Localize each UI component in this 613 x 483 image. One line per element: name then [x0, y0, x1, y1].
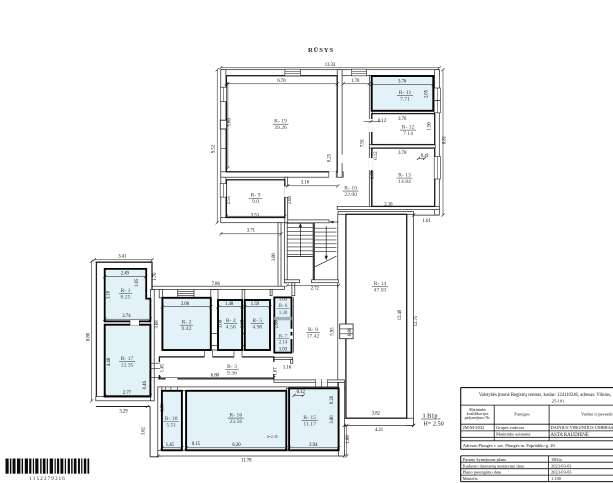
- svg-text:R- 3: R- 3: [227, 364, 237, 370]
- svg-text:R- 1: R- 1: [121, 288, 131, 294]
- svg-text:9.0: 9.0: [252, 199, 259, 205]
- svg-text:3.08: 3.08: [241, 319, 246, 328]
- svg-text:2.69: 2.69: [288, 196, 293, 205]
- svg-text:14.84: 14.84: [398, 179, 411, 185]
- svg-text:2.14: 2.14: [279, 340, 288, 345]
- svg-text:4.46: 4.46: [107, 357, 112, 366]
- svg-text:1.03: 1.03: [279, 347, 288, 352]
- svg-text:0.41: 0.41: [421, 154, 430, 159]
- svg-text:RŪSYS: RŪSYS: [308, 47, 334, 54]
- svg-text:1:100: 1:100: [551, 476, 562, 481]
- svg-text:Grupės vadovas: Grupės vadovas: [496, 425, 524, 430]
- svg-text:1 1 5 2 3 7 9 3 1 6: 1 1 5 2 3 7 9 3 1 6: [29, 477, 65, 482]
- svg-text:1.70: 1.70: [153, 272, 158, 281]
- svg-text:12.49: 12.49: [398, 309, 403, 320]
- svg-text:3.80: 3.80: [330, 415, 335, 424]
- svg-text:39.26: 39.26: [274, 125, 287, 131]
- svg-text:3.08: 3.08: [155, 320, 160, 329]
- svg-text:3.76: 3.76: [398, 117, 407, 122]
- svg-text:5.51: 5.51: [166, 422, 176, 428]
- svg-text:5.95: 5.95: [331, 327, 336, 336]
- svg-text:1.30: 1.30: [279, 311, 288, 316]
- svg-text:3.88: 3.88: [371, 170, 376, 179]
- svg-text:7.91: 7.91: [361, 138, 366, 147]
- svg-text:0.15: 0.15: [192, 442, 201, 447]
- svg-text:3.71: 3.71: [247, 229, 256, 234]
- svg-text:1.03: 1.03: [279, 297, 288, 302]
- svg-text:3.10: 3.10: [106, 290, 111, 299]
- svg-text:6.70: 6.70: [277, 79, 286, 84]
- svg-text:2.72: 2.72: [311, 286, 320, 291]
- svg-text:3.76: 3.76: [398, 80, 407, 85]
- svg-text:R- 2: R- 2: [182, 320, 192, 326]
- svg-text:R- 15: R- 15: [303, 415, 316, 421]
- svg-text:R- 19: R- 19: [274, 119, 287, 125]
- svg-text:2.77: 2.77: [123, 391, 132, 396]
- svg-text:11.78: 11.78: [241, 459, 252, 464]
- svg-text:1.88: 1.88: [346, 435, 351, 444]
- svg-text:R- 9: R- 9: [251, 193, 261, 199]
- svg-text:Valstybės įmonė Registrų centr: Valstybės įmonė Registrų centras, kodas:…: [479, 393, 611, 398]
- svg-text:7.86: 7.86: [212, 282, 221, 287]
- svg-text:2.10: 2.10: [384, 202, 393, 207]
- svg-text:Vardas ir pavardė: Vardas ir pavardė: [581, 412, 613, 417]
- svg-text:1.70: 1.70: [351, 79, 360, 84]
- svg-text:3.80: 3.80: [160, 403, 165, 412]
- svg-text:6.20: 6.20: [232, 443, 241, 448]
- svg-text:2.55: 2.55: [227, 195, 232, 204]
- svg-text:23.56: 23.56: [229, 419, 242, 425]
- svg-text:R- 11: R- 11: [399, 90, 412, 96]
- svg-text:Pareigos: Pareigos: [514, 412, 530, 417]
- svg-text:3.76: 3.76: [398, 151, 407, 156]
- svg-text:3.29: 3.29: [119, 410, 128, 415]
- svg-text:2.94: 2.94: [309, 443, 318, 448]
- svg-text:1.16: 1.16: [283, 366, 292, 371]
- svg-text:4.56: 4.56: [226, 325, 236, 331]
- svg-text:9.52: 9.52: [212, 144, 217, 153]
- svg-text:1B3/p: 1B3/p: [551, 457, 563, 462]
- svg-text:R- 16: R- 16: [229, 412, 242, 418]
- svg-text:3.82: 3.82: [372, 411, 381, 416]
- svg-text:pažymėjimo Nr.: pažymėjimo Nr.: [465, 415, 491, 420]
- svg-text:8.80: 8.80: [86, 332, 91, 341]
- svg-text:Matininko asistentė: Matininko asistentė: [496, 432, 531, 437]
- svg-text:R- 18: R- 18: [165, 416, 178, 422]
- svg-text:Mastelis: Mastelis: [463, 476, 478, 481]
- svg-text:1.45: 1.45: [161, 363, 166, 372]
- svg-text:R- 10: R- 10: [344, 185, 357, 191]
- svg-text:h=2.40: h=2.40: [267, 435, 278, 439]
- svg-text:Plano parengimo data: Plano parengimo data: [463, 470, 501, 475]
- svg-text:R- 5: R- 5: [252, 318, 262, 324]
- svg-text:5.06: 5.06: [227, 118, 232, 127]
- svg-text:12.35: 12.35: [121, 363, 134, 369]
- svg-text:Adresas:Plungės r. sav. Plungė: Adresas:Plungės r. sav. Plungės m. Paprū…: [463, 443, 556, 448]
- svg-text:25-101: 25-101: [552, 398, 565, 403]
- svg-text:0.20: 0.20: [330, 395, 335, 404]
- svg-text:3.06: 3.06: [181, 302, 190, 307]
- svg-text:2.05: 2.05: [424, 89, 429, 98]
- svg-text:1.90: 1.90: [427, 121, 432, 130]
- svg-text:22.00: 22.00: [344, 192, 357, 198]
- svg-text:R- 12: R- 12: [402, 124, 415, 130]
- svg-text:9.42: 9.42: [182, 326, 192, 332]
- svg-text:2023-03-03: 2023-03-03: [551, 463, 572, 468]
- svg-text:0.46: 0.46: [143, 381, 148, 390]
- svg-text:0.12: 0.12: [297, 390, 306, 395]
- svg-text:11.17: 11.17: [303, 422, 316, 428]
- svg-text:0.25: 0.25: [328, 153, 333, 162]
- svg-text:3.53: 3.53: [251, 213, 260, 218]
- svg-text:Kadastro duomenų nustatymo dat: Kadastro duomenų nustatymo data: [463, 463, 524, 468]
- svg-text:R- 13: R- 13: [398, 172, 411, 178]
- svg-text:3.80: 3.80: [272, 252, 277, 261]
- svg-text:6.80: 6.80: [211, 373, 220, 378]
- svg-text:1.48: 1.48: [225, 302, 234, 307]
- svg-text:2.68: 2.68: [275, 320, 280, 329]
- svg-text:0.12: 0.12: [378, 119, 387, 124]
- svg-text:3.08: 3.08: [218, 319, 223, 328]
- svg-text:47.03: 47.03: [374, 287, 387, 293]
- svg-text:H= 2.50: H= 2.50: [423, 420, 443, 427]
- svg-text:R- 8: R- 8: [308, 327, 318, 333]
- svg-text:ASTA RAUDIENĖ: ASTA RAUDIENĖ: [551, 432, 589, 438]
- svg-text:R- 14: R- 14: [374, 281, 387, 287]
- svg-text:4.90: 4.90: [252, 325, 262, 331]
- svg-text:3.62: 3.62: [142, 427, 147, 436]
- svg-text:2.74: 2.74: [122, 314, 131, 319]
- svg-text:R- 4: R- 4: [226, 318, 236, 324]
- svg-text:8.81: 8.81: [443, 135, 448, 144]
- svg-text:1.61: 1.61: [422, 219, 431, 224]
- svg-text:1.45: 1.45: [166, 443, 175, 448]
- svg-text:DAINIUS VIRGINIJUS UMBRASAS: DAINIUS VIRGINIJUS UMBRASAS: [551, 425, 613, 430]
- svg-text:Pastato žymėjimas plane: Pastato žymėjimas plane: [463, 457, 506, 462]
- svg-text:8.25: 8.25: [121, 295, 131, 301]
- svg-text:9.36: 9.36: [227, 371, 237, 377]
- svg-text:1.05: 1.05: [135, 278, 140, 287]
- svg-text:2023-03-03: 2023-03-03: [551, 470, 572, 475]
- svg-text:4.21: 4.21: [375, 428, 384, 433]
- svg-text:1 B1p: 1 B1p: [423, 412, 438, 419]
- svg-text:0.12: 0.12: [374, 151, 379, 160]
- svg-text:17.42: 17.42: [307, 334, 320, 340]
- svg-text:2M-M-2032: 2M-M-2032: [463, 425, 485, 430]
- svg-text:1.07: 1.07: [274, 367, 279, 376]
- svg-text:2.49: 2.49: [121, 272, 130, 277]
- svg-text:3.41: 3.41: [118, 255, 127, 260]
- svg-text:7.71: 7.71: [400, 97, 410, 103]
- svg-text:7.14: 7.14: [403, 131, 413, 137]
- svg-text:13.33: 13.33: [325, 63, 336, 68]
- svg-text:0.86: 0.86: [348, 327, 353, 336]
- svg-text:12.75: 12.75: [414, 315, 419, 326]
- svg-text:3.16: 3.16: [301, 181, 310, 186]
- svg-text:1.59: 1.59: [251, 302, 260, 307]
- svg-text:R- 17: R- 17: [121, 356, 134, 362]
